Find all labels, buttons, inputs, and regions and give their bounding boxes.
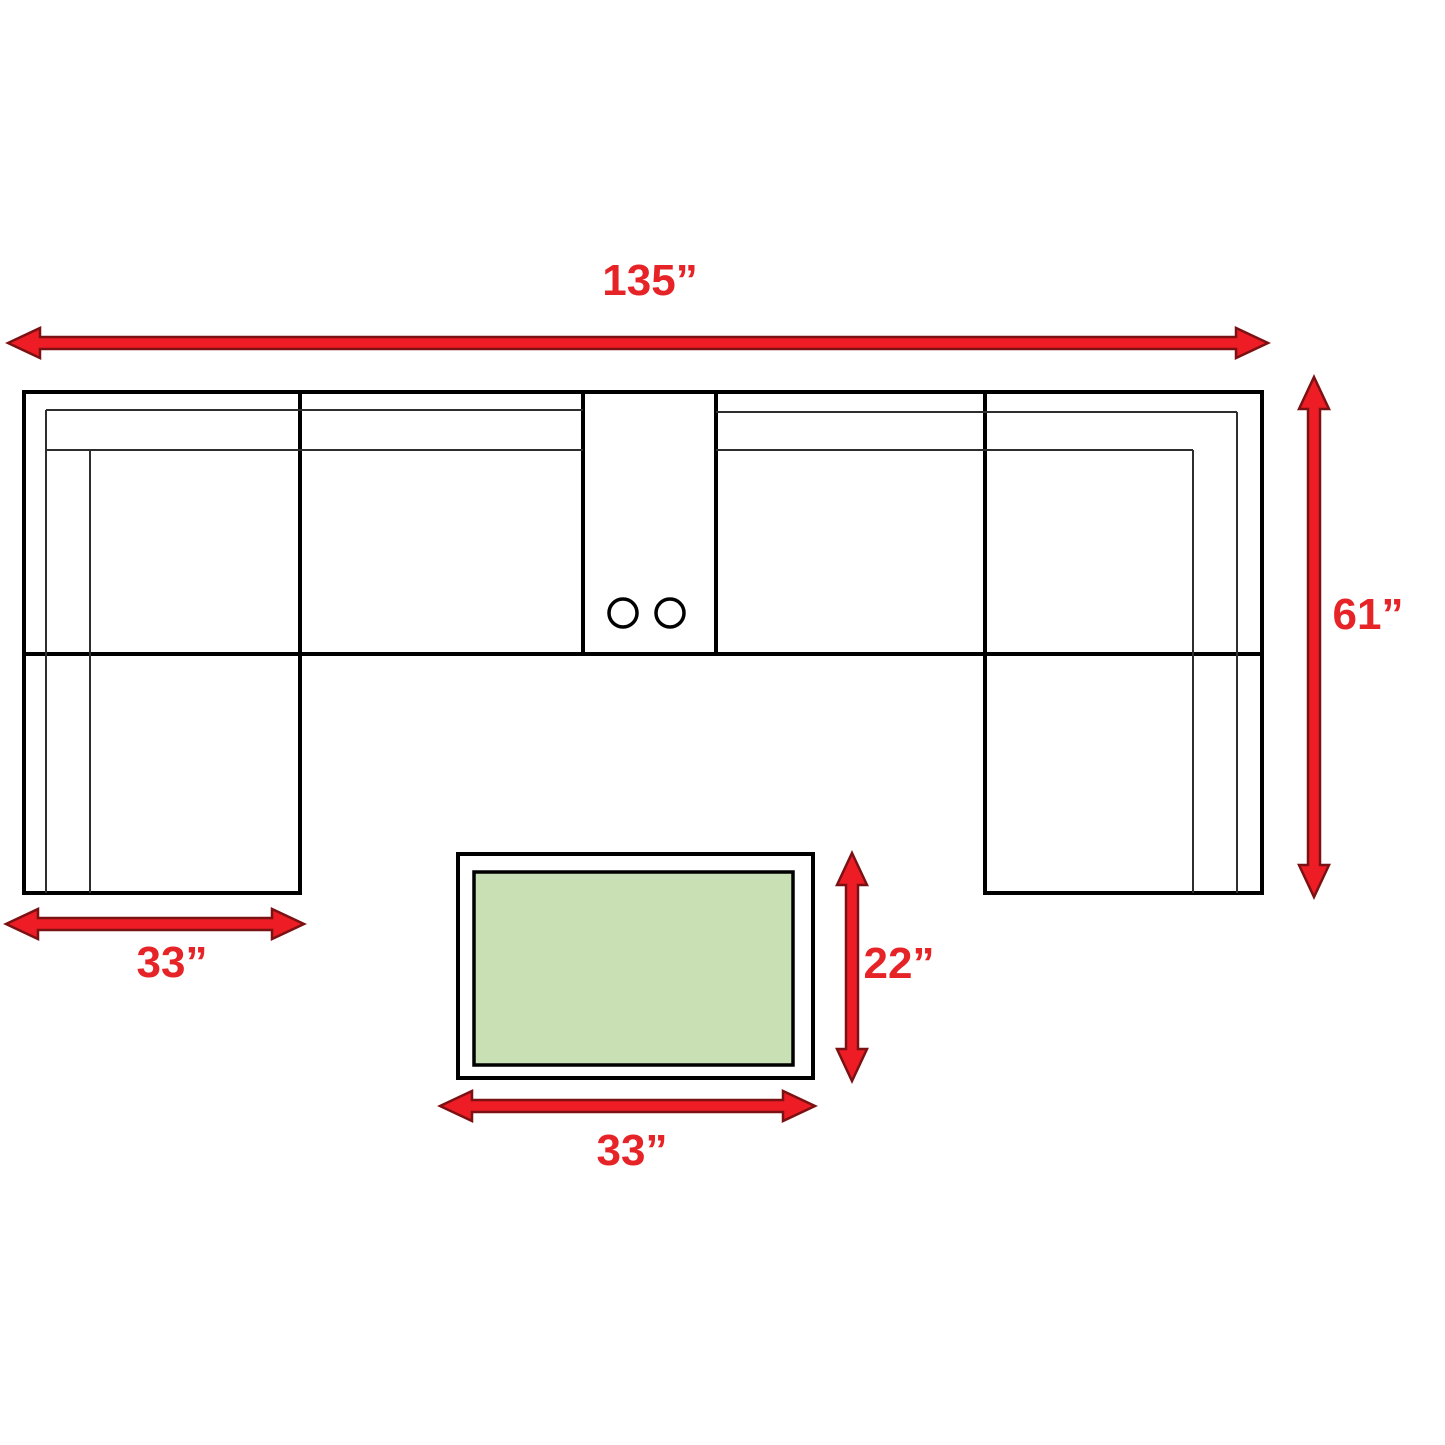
table-depth-arrow bbox=[837, 853, 867, 1081]
sofa-depth-arrow bbox=[1299, 377, 1329, 897]
chaise-width-label: 33” bbox=[137, 938, 208, 988]
table-depth-label: 22” bbox=[864, 939, 935, 989]
sofa-depth-label: 61” bbox=[1333, 590, 1404, 640]
sofa-width-label: 135” bbox=[602, 256, 697, 306]
console-cupholder-left-icon bbox=[609, 599, 637, 627]
furniture-dimension-diagram: 135” 61” 33” 22” 33” bbox=[0, 0, 1445, 1445]
table-width-arrow bbox=[440, 1091, 815, 1121]
table-glass-top bbox=[474, 872, 793, 1065]
sofa-outer-boundary bbox=[24, 392, 1262, 893]
table-width-label: 33” bbox=[597, 1126, 668, 1176]
coffee-table-outline bbox=[458, 854, 813, 1078]
chaise-width-arrow bbox=[6, 909, 304, 939]
console-cupholder-right-icon bbox=[656, 599, 684, 627]
sectional-sofa-outline bbox=[24, 392, 1262, 893]
diagram-graphics bbox=[0, 0, 1445, 1445]
sofa-width-arrow bbox=[8, 328, 1268, 358]
